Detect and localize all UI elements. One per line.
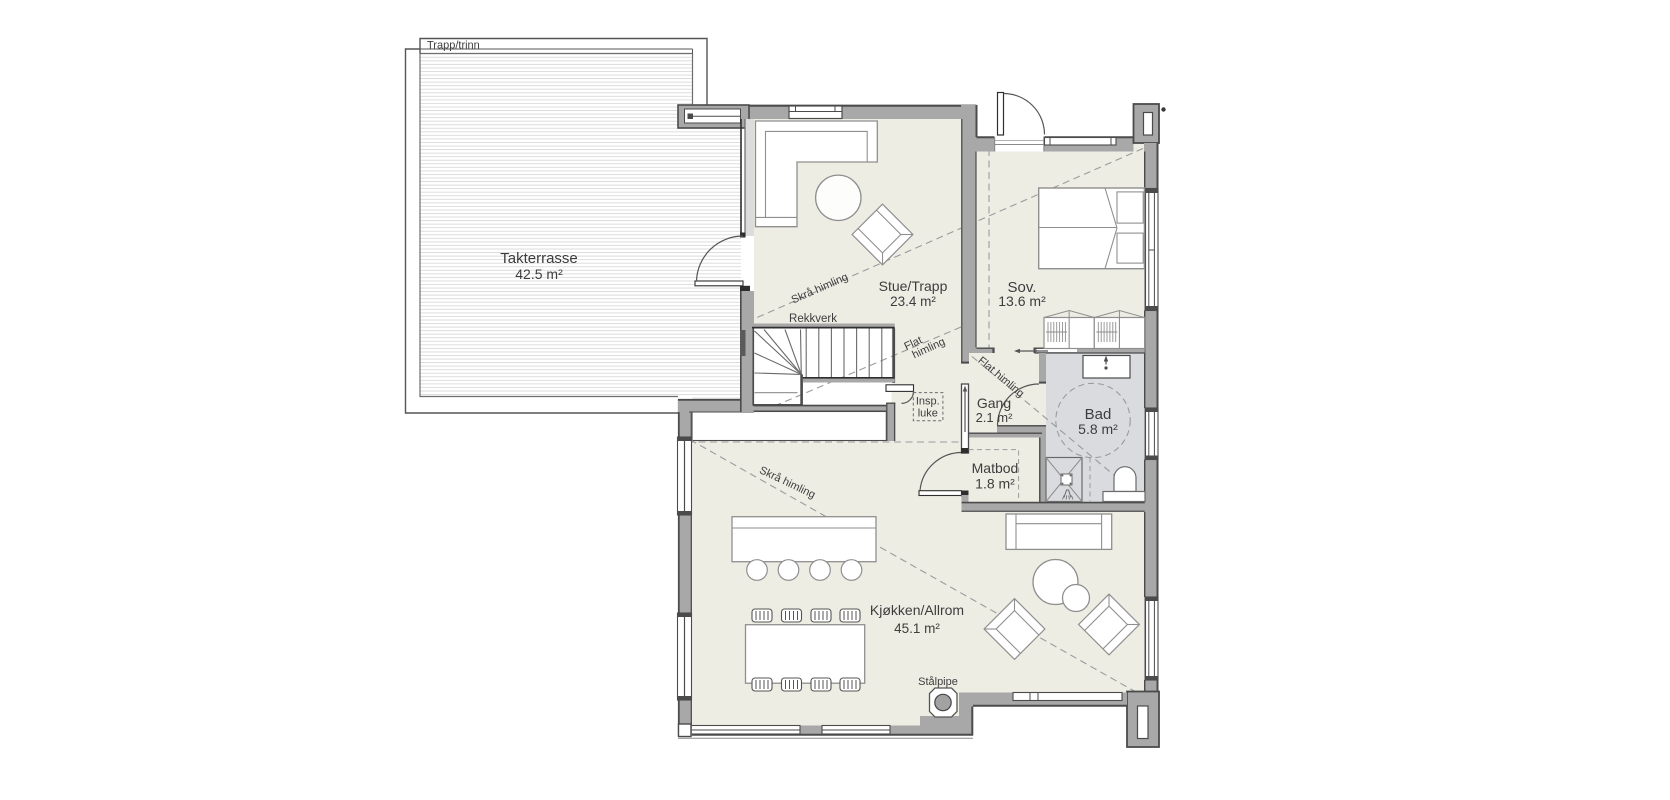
svg-text:1.8 m²: 1.8 m² — [975, 476, 1015, 492]
svg-text:Insp.: Insp. — [916, 396, 940, 408]
svg-text:45.1 m²: 45.1 m² — [894, 621, 940, 636]
svg-text:Stue/Trapp: Stue/Trapp — [879, 278, 948, 294]
svg-text:Matbod: Matbod — [972, 460, 1019, 476]
svg-text:42.5 m²: 42.5 m² — [515, 266, 563, 282]
svg-text:Stålpipe: Stålpipe — [918, 676, 958, 688]
svg-text:2.1 m²: 2.1 m² — [976, 410, 1014, 425]
svg-text:5.8 m²: 5.8 m² — [1078, 421, 1118, 437]
svg-text:Kjøkken/Allrom: Kjøkken/Allrom — [870, 602, 964, 618]
svg-text:13.6 m²: 13.6 m² — [998, 293, 1046, 309]
svg-text:Takterrasse: Takterrasse — [500, 250, 578, 267]
svg-text:23.4 m²: 23.4 m² — [890, 294, 936, 309]
svg-text:luke: luke — [918, 408, 938, 420]
svg-text:Rekkverk: Rekkverk — [789, 313, 837, 325]
svg-text:Trapp/trinn: Trapp/trinn — [427, 40, 480, 52]
svg-text:Gang: Gang — [977, 395, 1011, 411]
